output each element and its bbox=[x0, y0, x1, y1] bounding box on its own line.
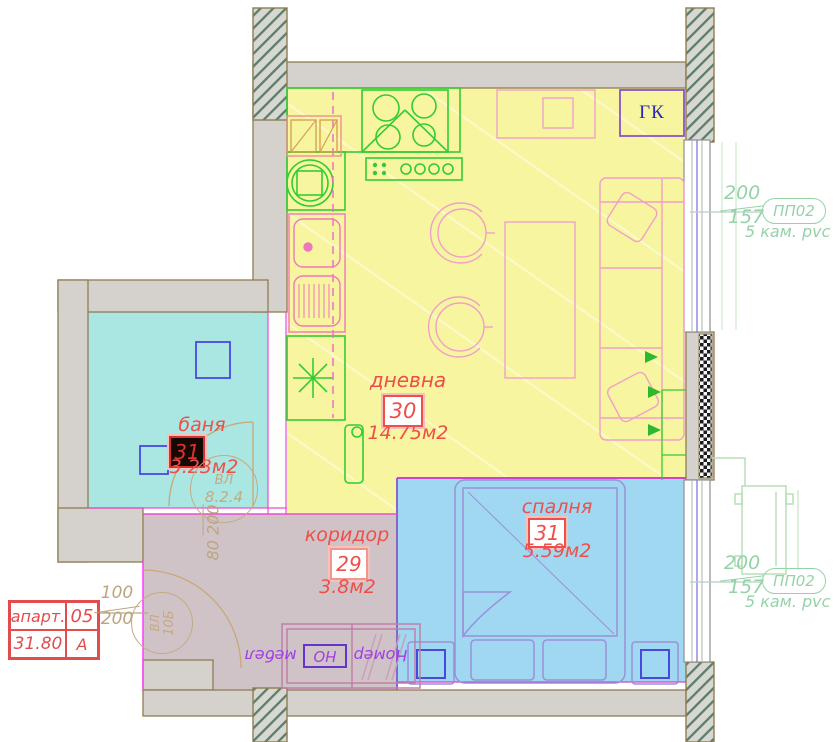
corridor-name: коридор bbox=[297, 526, 397, 546]
entrance-dim-width: 100 bbox=[96, 585, 138, 603]
drainer-ribs bbox=[299, 284, 329, 318]
column-top-right bbox=[686, 8, 714, 142]
bathroom-name: баня bbox=[162, 416, 242, 436]
bathroom-door-tag-line2: 8.2.4 bbox=[205, 488, 243, 506]
bedroom-window-tag: ПП02 bbox=[762, 568, 826, 594]
insulation-strip bbox=[699, 334, 712, 478]
stamp-letter: A bbox=[65, 629, 99, 659]
radiator-tab-3 bbox=[786, 494, 793, 504]
wall-above-bath bbox=[58, 280, 268, 312]
bathroom-door-tag-line1: ВЛ bbox=[215, 473, 234, 488]
bath-dim-slash-gap bbox=[204, 535, 223, 540]
wall-entry-step bbox=[143, 660, 213, 690]
wall-below-bath bbox=[58, 508, 143, 562]
appliance-asterisk bbox=[293, 358, 333, 398]
bathroom-wall-strip bbox=[268, 312, 287, 514]
column-top-left bbox=[253, 8, 287, 120]
entrance-door-tag-line1: ВЛ bbox=[148, 614, 162, 631]
stamp-label: апарт. bbox=[9, 601, 67, 631]
radiator-pipe bbox=[712, 458, 745, 486]
bedroom-areatext: 5.59м2 bbox=[503, 542, 611, 562]
furniture-note-suffix: мебел bbox=[245, 647, 297, 666]
corridor-areatext: 3.8м2 bbox=[300, 578, 395, 598]
bedroom-window-width: 200 bbox=[724, 554, 760, 574]
living-room-areatext: 14.75м2 bbox=[353, 424, 463, 444]
entrance-door-tag-line2: 10Б bbox=[162, 610, 177, 635]
wall-bottom bbox=[143, 690, 686, 716]
furniture-number-note: Номер НО мебел bbox=[228, 640, 424, 672]
living-window-spec: 5 кам. pvc bbox=[745, 224, 830, 241]
dot-1 bbox=[374, 164, 377, 167]
bathroom-door-tag: ВЛ 8.2.4 bbox=[190, 455, 258, 523]
wall-kitchen-left bbox=[253, 88, 287, 312]
dot-3 bbox=[374, 172, 377, 175]
bedroom-window-spec: 5 кам. pvc bbox=[745, 594, 830, 611]
dot-2 bbox=[383, 164, 386, 167]
bedroom-name: спалня bbox=[507, 498, 607, 518]
radiator-tab-1 bbox=[735, 494, 742, 504]
faucet bbox=[304, 243, 312, 251]
apartment-stamp: апарт. 05 31.80 A bbox=[8, 600, 100, 660]
bath-dim-width: 80 bbox=[204, 540, 223, 560]
stamp-total-area: 31.80 bbox=[9, 629, 67, 659]
living-window-tag: ПП02 bbox=[762, 198, 826, 224]
furniture-note-prefix: Номер bbox=[354, 647, 408, 666]
column-bottom-center bbox=[253, 688, 287, 742]
stamp-number: 05 bbox=[65, 601, 99, 631]
floor-plan: дневна 30 14.75м2 баня 31 3.23м2 коридор… bbox=[0, 0, 834, 742]
entrance-door-tag: ВЛ 10Б bbox=[131, 592, 193, 654]
closet-label: ГК bbox=[620, 90, 684, 136]
wall-top bbox=[253, 62, 686, 88]
living-room-name: дневна bbox=[358, 370, 458, 391]
column-bottom-right bbox=[686, 662, 714, 742]
furniture-note-code: НО bbox=[303, 644, 346, 668]
living-window-width: 200 bbox=[724, 184, 760, 204]
dot-4 bbox=[383, 172, 386, 175]
